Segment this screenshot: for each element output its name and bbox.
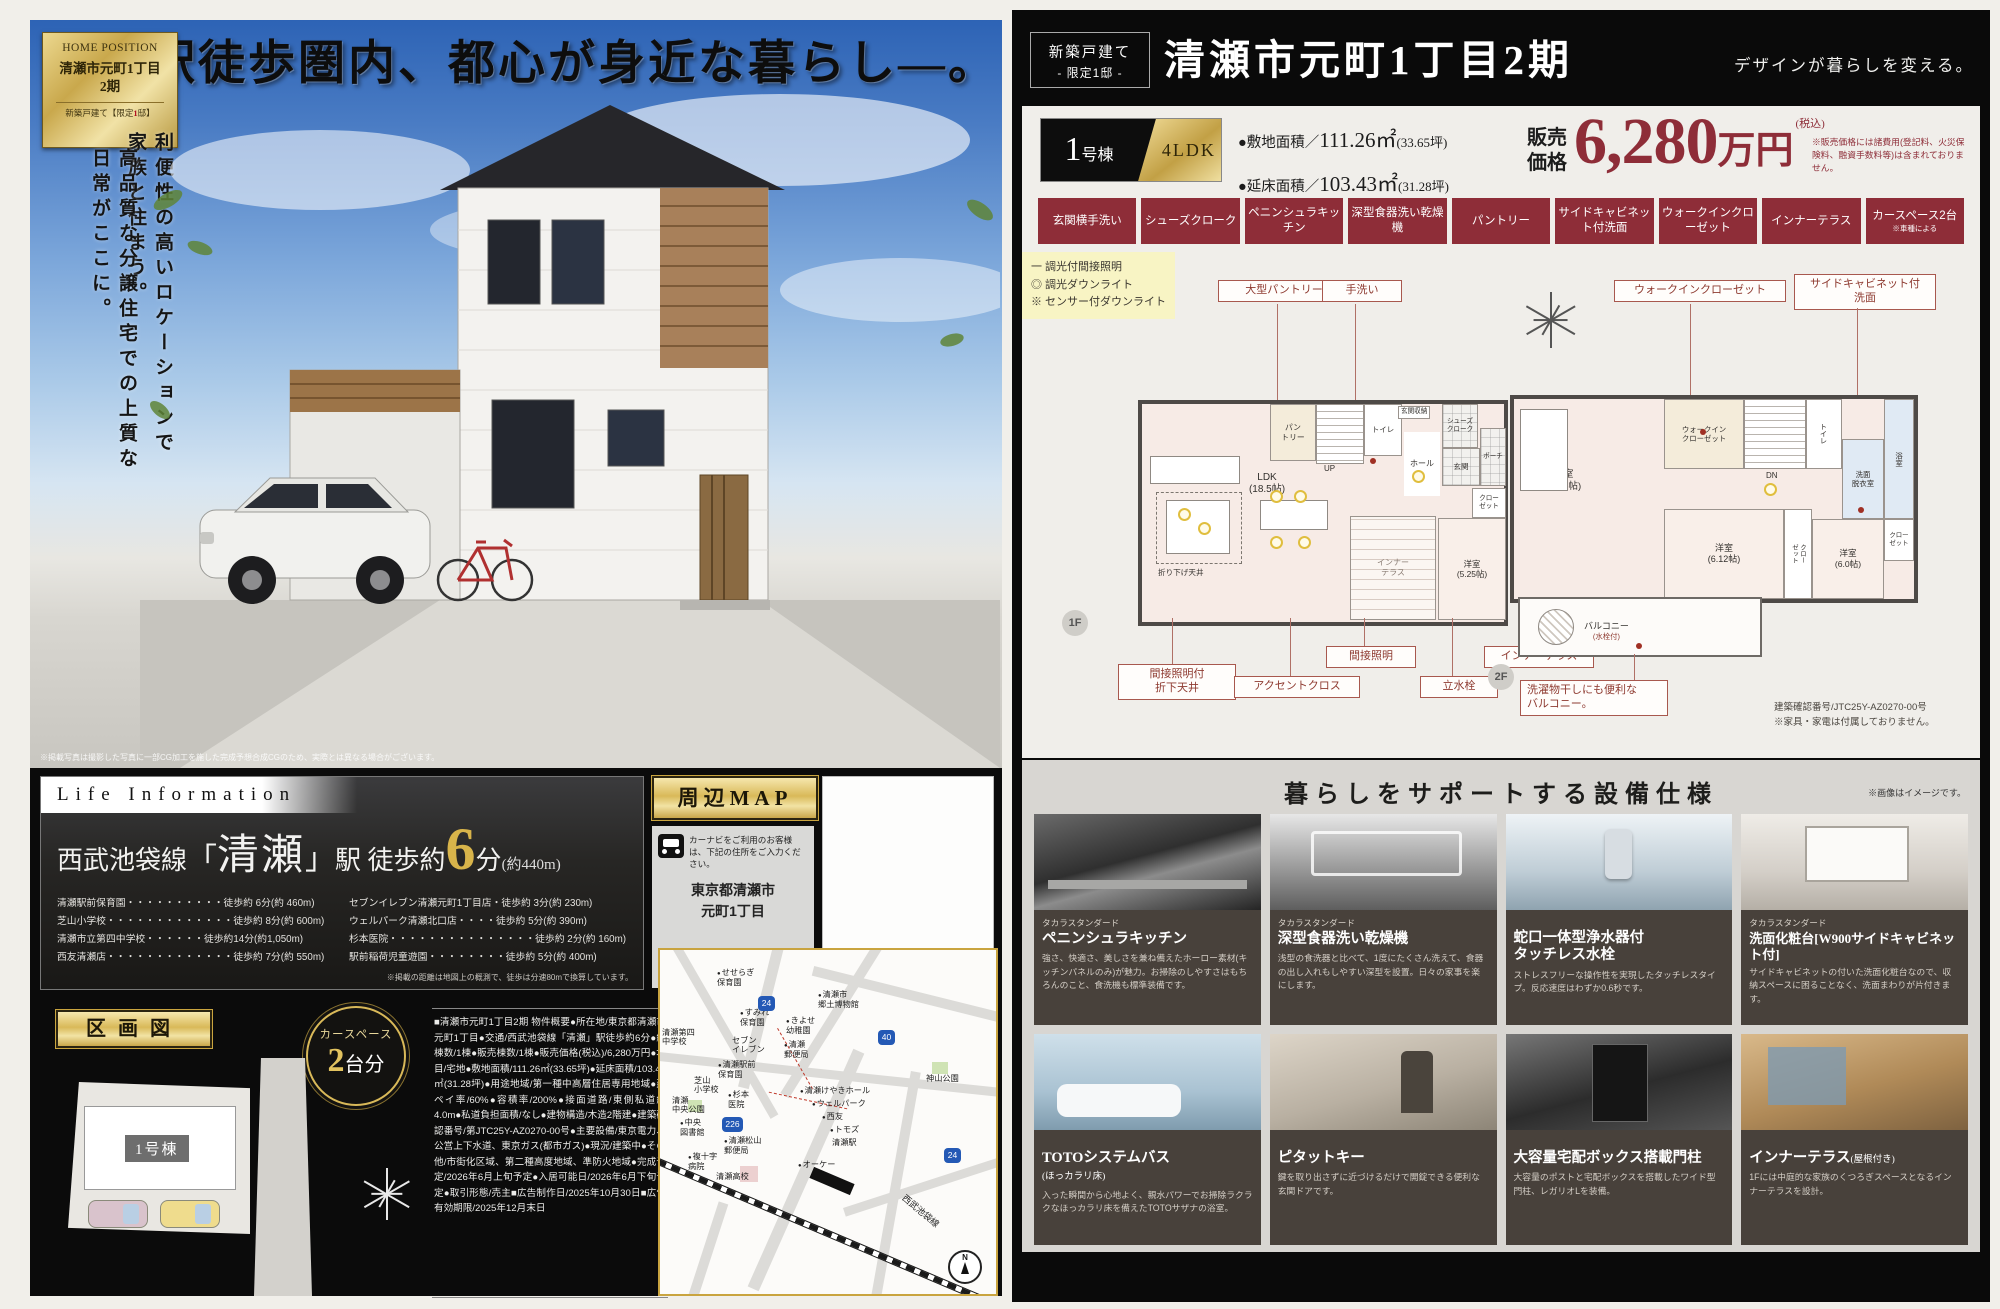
right-content: 1号棟 4LDK ●敷地面積／111.26㎡(33.65坪) ●延床面積／103…: [1022, 106, 1980, 758]
callout-balcony-note: 洗濯物干しにも便利な バルコニー。: [1520, 680, 1668, 716]
equipment-desc: 浅型の食洗器と比べて、1度にたくさん洗えて、食器の出し入れもしやすい深型を設置。…: [1278, 952, 1489, 992]
equipment-photo: [1741, 1034, 1968, 1130]
sofa: [1260, 500, 1328, 530]
feature-badge: サイドキャビネット付洗面: [1555, 198, 1653, 244]
area-figures: ●敷地面積／111.26㎡(33.65坪) ●延床面積／103.43㎡(31.2…: [1238, 118, 1449, 206]
equipment-name: 洗面化粧台[W900サイドキャビネット付]: [1749, 931, 1960, 962]
label-lowered-ceiling: 折り下げ天井: [1158, 568, 1204, 578]
life-item: 西友清瀬店・・・・・・・・・・・・・徒歩約 7分(約 550m): [57, 949, 337, 967]
car-space-badge: カースペース 2台分: [306, 1006, 406, 1106]
route-badge: 40: [878, 1030, 895, 1045]
car-space-count: 2: [328, 1042, 345, 1079]
room-yoshitsu-60: 洋室 (6.0帖): [1812, 519, 1884, 599]
feature-badge: カースペース2台※車種による: [1866, 198, 1964, 244]
life-item: 清瀬市立第四中学校・・・・・・徒歩約14分(約1,050m): [57, 931, 337, 949]
equipment-photo: [1034, 1034, 1261, 1130]
hero-photo: 駅徒歩圏内、都心が身近な暮らし―。 HOME POSITION 清瀬市元町1丁目…: [30, 20, 1002, 768]
equipment-title: 暮らしをサポートする設備仕様: [1022, 774, 1980, 809]
layout-label: 4LDK: [1162, 140, 1216, 161]
room-toilet: トイレ: [1364, 404, 1402, 456]
map-label: 西友: [822, 1112, 843, 1122]
equipment-desc: 強さ、快適さ、美しさを兼ね備えたホーロー素材(キッチンパネルのみ)が魅力。お掃除…: [1042, 952, 1253, 992]
room-toilet-2f: トイレ: [1806, 399, 1842, 469]
map-label: 清瀬駅前 保育園: [718, 1060, 755, 1079]
feature-badge-note: ※車種による: [1892, 224, 1937, 234]
unit-suffix: 号棟: [1081, 147, 1113, 164]
logo-sub: 新築戸建て【限定: [65, 108, 133, 118]
map-label: せせらぎ 保育園: [717, 968, 754, 987]
bracket: 」: [305, 843, 335, 876]
feature-badge: 深型食器洗い乾燥機: [1348, 198, 1446, 244]
station-marker: [809, 1167, 854, 1195]
room-genkan: 玄関: [1442, 448, 1480, 486]
map-label: トモズ: [830, 1125, 859, 1135]
equipment-section: 暮らしをサポートする設備仕様 ※画像はイメージです。 タカラスタンダード ペニン…: [1022, 760, 1980, 1252]
room-ldk: LDK (18.5帖): [1232, 464, 1302, 504]
land-area-label: ●敷地面積／: [1238, 135, 1319, 151]
equipment-note: ※画像はイメージです。: [1868, 786, 1966, 799]
station-access: 西武池袋線「清瀬」駅 徒歩約6分(約440m): [57, 821, 561, 882]
parked-car-2: [160, 1200, 220, 1228]
room-closet: クロー ゼット: [1472, 488, 1506, 518]
route-badge: 24: [944, 1148, 961, 1163]
parked-car-1: [88, 1200, 148, 1228]
distance-note: ※掲載の距離は地図上の概測で、徒歩は分速80mで換算しています。: [387, 972, 633, 983]
walk-label: 駅 徒歩約: [335, 846, 446, 875]
equipment-name: ピタットキー: [1278, 1150, 1489, 1167]
confirmation-number: 建築確認番号/JTC25Y-AZ0270-00号: [1774, 700, 1964, 715]
life-item: 芝山小学校・・・・・・・・・・・・・徒歩約 8分(約 600m): [57, 913, 337, 931]
photo-caption: ※掲載写真は撮影した写真に一部CG加工を施した完成予想合成CGのため、実際とは異…: [40, 752, 439, 763]
equipment-desc: 大容量のポストと宅配ボックスを搭載したワイド型門柱、レガリオLを装備。: [1514, 1171, 1725, 1197]
equipment-photo: [1270, 1034, 1497, 1130]
equipment-card-faucet: 蛇口一体型浄水器付 タッチレス水栓 ストレスフリーな操作性を実現したタッチレスタ…: [1506, 814, 1733, 1025]
unit-badge: 1号棟 4LDK: [1040, 118, 1222, 182]
right-header: 新築戸建て - 限定1邸 - 清瀬市元町1丁目2期 デザインが暮らしを変える。: [1012, 10, 1990, 106]
life-item: ウェルパーク清瀬北口店・・・・徒歩約 5分(約 390m): [349, 913, 629, 931]
floor-area-label: ●延床面積／: [1238, 179, 1319, 195]
property-title: 清瀬市元町1丁目2期: [1164, 26, 1573, 86]
equipment-card-terrace: インナーテラス(屋根付き) 1Fには中庭的な家族のくつろぎスペースとなるインナー…: [1741, 1034, 1968, 1245]
life-item: 駅前稲荷児童遊園・・・・・・・・徒歩約 5分(約 400m): [349, 949, 629, 967]
map-label: 西武池袋線: [900, 1193, 941, 1230]
badge-line2: - 限定1邸 -: [1031, 64, 1149, 81]
right-flyer-panel: 新築戸建て - 限定1邸 - 清瀬市元町1丁目2期 デザインが暮らしを変える。 …: [1012, 10, 1990, 1302]
walk-minutes: 6: [446, 816, 476, 882]
label-dn: DN: [1766, 471, 1778, 481]
feature-badge: ウォークインクローゼット: [1659, 198, 1757, 244]
map-label: 清瀬駅: [832, 1138, 857, 1147]
badge-line1: 新築戸建て: [1031, 41, 1149, 62]
room-yoshitsu-612: 洋室 (6.12帖): [1664, 509, 1784, 599]
equipment-name: 蛇口一体型浄水器付 タッチレス水栓: [1514, 930, 1725, 965]
equipment-name: TOTOシステムバス(ほっカラリ床): [1042, 1150, 1253, 1185]
equipment-photo: [1270, 814, 1497, 910]
lot-building-footprint: 1号棟: [84, 1106, 236, 1190]
room-shoes-closet: シューズ クローク: [1442, 404, 1478, 448]
sparkle-icon: [360, 1168, 412, 1220]
price-number: 6,280: [1574, 106, 1718, 178]
equipment-name: インナーテラス(屋根付き): [1749, 1150, 1960, 1167]
floorplan-area: 大型パントリー 手洗い ウォークインクローゼット サイドキャビネット付 洗面 L…: [1022, 252, 1980, 758]
equipment-name: ペニンシュラキッチン: [1042, 931, 1253, 948]
floor-tag-2f: 2F: [1488, 664, 1514, 690]
road-strip: [254, 1058, 312, 1296]
callout-side-cabinet: サイドキャビネット付 洗面: [1794, 274, 1936, 310]
equipment-photo: [1741, 814, 1968, 910]
legend-line1: 一 調光付間接照明: [1031, 259, 1166, 277]
room-closet-mid: クロー ゼット: [1784, 509, 1812, 599]
equipment-brand: [1749, 1137, 1960, 1148]
route-badge: 24: [758, 996, 775, 1011]
callout-accent: アクセントクロス: [1234, 676, 1360, 698]
address-line1: 東京都清瀬市: [691, 882, 775, 898]
logo-title-line2: 2期: [100, 79, 120, 94]
equipment-desc: 入った瞬間から心地よく、親水パワーでお掃除ラクラクなほっカラリ床を備えたTOTO…: [1042, 1189, 1253, 1215]
lot-diagram: 1号棟: [68, 1082, 250, 1234]
price-unit: 万円: [1718, 130, 1794, 172]
price-label-1: 販売: [1527, 126, 1567, 151]
feature-badge: パントリー: [1452, 198, 1550, 244]
address-line2: 元町1丁目: [701, 903, 765, 919]
tagline: デザインが暮らしを変える。: [1734, 52, 1974, 76]
rail-line: 西武池袋線: [57, 846, 187, 875]
map-label: 清瀬 中央公園: [672, 1096, 705, 1115]
map-label: 杉本 医院: [728, 1090, 749, 1109]
floor-area-value: 103.43㎡: [1319, 172, 1398, 196]
compass-n: N: [950, 1253, 980, 1262]
life-item: 清瀬駅前保育園・・・・・・・・・・徒歩約 6分(約 460m): [57, 895, 337, 913]
callout-indirect: 間接照明: [1326, 646, 1416, 668]
map-label: 芝山 小学校: [694, 1076, 719, 1095]
room-hall: ホール: [1404, 432, 1440, 496]
surrounding-map-title: 周辺MAP: [652, 776, 818, 820]
equipment-card-postbox: 大容量宅配ボックス搭載門柱 大容量のポストと宅配ボックスを搭載したワイド型門柱、…: [1506, 1034, 1733, 1245]
car-space-unit: 台分: [345, 1054, 385, 1076]
car-icon: [658, 834, 684, 858]
equipment-brand: タカラスタンダード: [1278, 917, 1489, 929]
callout-tap: 立水栓: [1420, 676, 1498, 698]
stairs-down: [1744, 399, 1806, 469]
neighborhood-map: せせらぎ 保育園 すみれ 保育園 清瀬市 郷土博物館 きよせ 幼稚園 清瀬第四 …: [658, 948, 998, 1296]
property-overview: ■清瀬市元町1丁目2期 物件概要●所在地/東京都清瀬市元町1丁目●交通/西武池袋…: [432, 1008, 668, 1298]
unit-number: 1: [1064, 131, 1081, 168]
price-label-2: 価格: [1527, 151, 1567, 176]
walk-distance: (約440m): [502, 857, 561, 873]
label-genkan-shuno: 玄関収納: [1398, 406, 1430, 419]
equipment-card-bath: TOTOシステムバス(ほっカラリ床) 入った瞬間から心地よく、親水パワーでお掃除…: [1034, 1034, 1261, 1245]
feature-badges: 玄関横手洗い シューズクローク ペニンシュラキッチン 深型食器洗い乾燥機 パント…: [1038, 198, 1964, 244]
floor-area-tsubo: (31.28坪): [1398, 179, 1449, 194]
vertical-copy-2: 高品質な分譲住宅での上質な日常がここに。: [86, 148, 140, 488]
label-balcony: バルコニー (水栓付): [1584, 609, 1629, 654]
callout-tearai: 手洗い: [1322, 280, 1402, 302]
lot-number-label: 1号棟: [125, 1135, 189, 1162]
price-amount: 6,280万円(税込): [1574, 106, 1823, 180]
room-yoshitsu-525: 洋室 (5.25帖): [1438, 518, 1506, 620]
room-closet-2f: クロー ゼット: [1884, 519, 1914, 561]
equipment-desc: 鍵を取り出さずに近づけるだけで開錠できる便利な玄関ドアです。: [1278, 1171, 1489, 1197]
floor-tag-1f: 1F: [1062, 610, 1088, 636]
map-label: きよせ 幼稚園: [786, 1016, 815, 1035]
equipment-brand: [1278, 1137, 1489, 1148]
furniture-note: ※家具・家電は付属しておりません。: [1774, 715, 1964, 730]
route-badge: 226: [722, 1117, 743, 1132]
land-area-tsubo: (33.65坪): [1396, 135, 1447, 150]
equipment-name: 深型食器洗い乾燥機: [1278, 931, 1489, 948]
lighting-legend: 一 調光付間接照明 ◎ 調光ダウンライト ※ センサー付ダウンライト: [1022, 252, 1175, 319]
equipment-desc: ストレスフリーな操作性を実現したタッチレスタイプ。反応速度はわずか0.6秒です。: [1514, 969, 1725, 995]
lot-plan-title: 区画図: [56, 1010, 212, 1048]
room-pantry: パン トリー: [1270, 404, 1316, 461]
car-space-label: カースペース: [308, 1026, 404, 1042]
callout-wic: ウォークインクローゼット: [1614, 280, 1786, 302]
equipment-photo: [1506, 814, 1733, 910]
equipment-name-sub: (ほっカラリ床): [1042, 1172, 1105, 1182]
legend-line3: ※ センサー付ダウンライト: [1031, 294, 1166, 312]
map-label: 中央 図書館: [680, 1118, 705, 1137]
equipment-brand: [1514, 917, 1725, 928]
equipment-brand: [1042, 1137, 1253, 1148]
logo-title-line1: 清瀬市元町1丁目: [59, 61, 160, 76]
life-information: Life Information 西武池袋線「清瀬」駅 徒歩約6分(約440m)…: [40, 776, 644, 990]
room-porch: ポーチ: [1480, 428, 1506, 486]
callout-ceiling: 間接照明付 折下天井: [1118, 664, 1236, 700]
sparkle-icon: [1522, 292, 1578, 348]
compass-icon: N: [948, 1250, 982, 1284]
balcony: バルコニー (水栓付): [1518, 597, 1762, 657]
balcony-table: [1538, 609, 1574, 645]
plan-notes: 建築確認番号/JTC25Y-AZ0270-00号 ※家具・家電は付属しておりませ…: [1774, 700, 1964, 730]
equipment-card-dishwasher: タカラスタンダード 深型食器洗い乾燥機 浅型の食洗器と比べて、1度にたくさん洗え…: [1270, 814, 1497, 1025]
brand-name: HOME POSITION: [43, 42, 177, 54]
equipment-desc: サイドキャビネットの付いた洗面化粧台なので、収納スペースに困ることなく、洗面まわ…: [1749, 966, 1960, 1006]
map-label: 清瀬けやきホール: [800, 1086, 870, 1096]
legend-line2: ◎ 調光ダウンライト: [1031, 277, 1166, 295]
equipment-brand: タカラスタンダード: [1749, 917, 1960, 929]
label-up: UP: [1324, 464, 1335, 474]
carnav-note: カーナビをご利用のお客様は、下記の住所をご入力ください。: [689, 834, 808, 870]
bracket: 「: [187, 843, 217, 876]
equipment-photo: [1506, 1034, 1733, 1130]
floorplan-1f: LDK (18.5帖) 折り下げ天井 パン トリー UP トイレ ホール 玄関収…: [1138, 400, 1508, 626]
map-label: ウェルパーク: [812, 1099, 866, 1109]
map-label: 神山公園: [926, 1074, 959, 1083]
equipment-card-key: ピタットキー 鍵を取り出さずに近づけるだけで開錠できる便利な玄関ドアです。: [1270, 1034, 1497, 1245]
map-label: 複十字 病院: [688, 1152, 717, 1171]
feature-badge: インナーテラス: [1762, 198, 1860, 244]
feature-badge: ペニンシュラキッチン: [1245, 198, 1343, 244]
park-block: [932, 1062, 948, 1074]
map-label: 清瀬第四 中学校: [662, 1028, 695, 1047]
map-label: オーケー: [798, 1160, 835, 1170]
equipment-card-vanity: タカラスタンダード 洗面化粧台[W900サイドキャビネット付] サイドキャビネッ…: [1741, 814, 1968, 1025]
house-illustration: [140, 80, 1000, 768]
label-balcony-sub: (水栓付): [1584, 632, 1629, 642]
tax-included: (税込): [1796, 118, 1825, 130]
equipment-card-kitchen: タカラスタンダード ペニンシュラキッチン 強さ、快適さ、美しさを兼ね備えたホーロ…: [1034, 814, 1261, 1025]
stairs-up: [1316, 404, 1364, 464]
equipment-brand: タカラスタンダード: [1042, 917, 1253, 929]
life-item: 杉本医院・・・・・・・・・・・・・・・徒歩約 2分(約 160m): [349, 931, 629, 949]
left-flyer-panel: 駅徒歩圏内、都心が身近な暮らし―。 HOME POSITION 清瀬市元町1丁目…: [30, 20, 1002, 1296]
life-information-tab: Life Information: [41, 777, 357, 813]
life-item: セブンイレブン清瀬元町1丁目店・徒歩約 3分(約 230m): [349, 895, 629, 913]
kitchen-counter: [1150, 456, 1240, 484]
feature-badge: シューズクローク: [1141, 198, 1239, 244]
map-label: 清瀬 郵便局: [784, 1040, 809, 1059]
equipment-desc: 1Fには中庭的な家族のくつろぎスペースとなるインナーテラスを設計。: [1749, 1171, 1960, 1197]
equipment-name-sub: (屋根付き): [1850, 1155, 1894, 1165]
floorplan-2f: 洋室 (9.25帖) ウォークイン クローゼット DN トイレ 洗面 脱衣室 浴…: [1510, 395, 1918, 603]
new-build-badge: 新築戸建て - 限定1邸 -: [1030, 32, 1150, 88]
room-bath: 浴室: [1884, 399, 1914, 519]
room-inner-terrace: インナー テラス: [1350, 516, 1436, 620]
equipment-brand: [1514, 1137, 1725, 1148]
map-label: 清瀬松山 郵便局: [724, 1136, 761, 1155]
equipment-name: 大容量宅配ボックス搭載門柱: [1514, 1150, 1725, 1167]
feature-badge: 玄関横手洗い: [1038, 198, 1136, 244]
station-name: 清瀬: [217, 833, 305, 879]
map-label: 清瀬高校: [716, 1172, 749, 1181]
price-note: ※販売価格には諸費用(登記料、火災保険料、融資手数料等)は含まれておりません。: [1812, 136, 1972, 176]
map-label: セブン イレブン: [732, 1036, 765, 1055]
map-label: 清瀬市 郷土博物館: [818, 990, 859, 1009]
bed: [1520, 409, 1568, 491]
land-area-value: 111.26㎡: [1319, 128, 1396, 152]
equipment-photo: [1034, 814, 1261, 910]
minutes-unit: 分: [476, 846, 502, 875]
